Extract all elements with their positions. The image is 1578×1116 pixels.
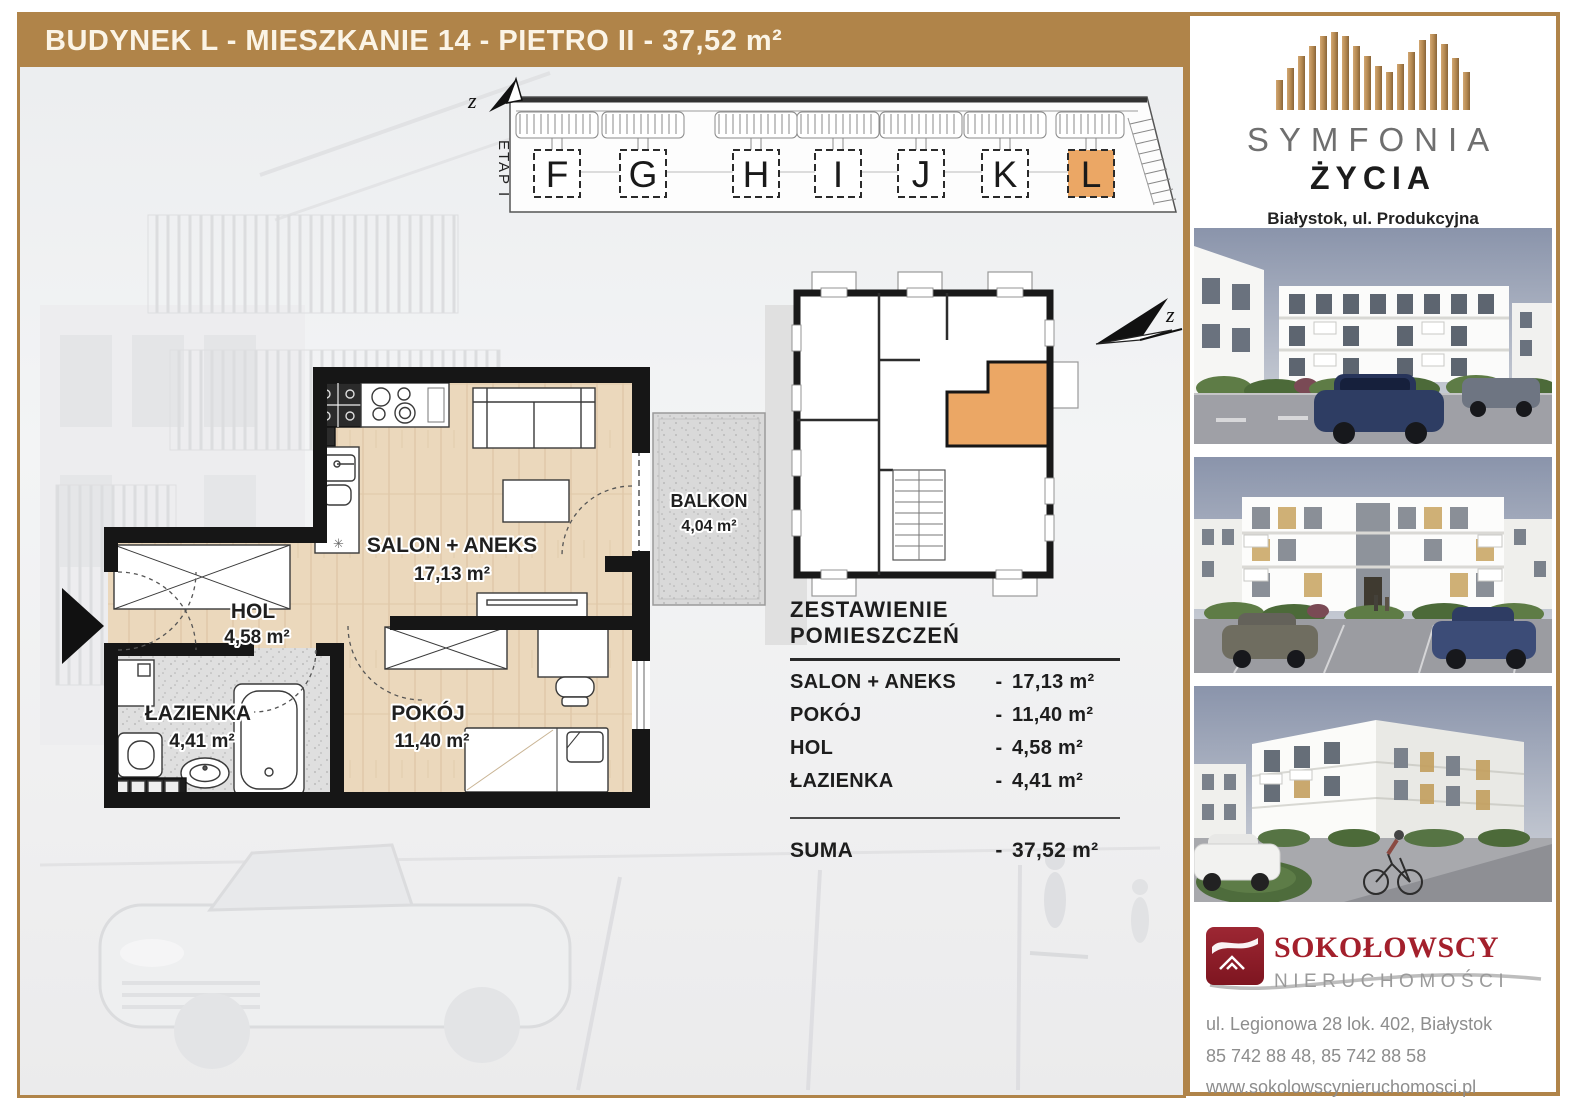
page-title: BUDYNEK L - MIESZKANIE 14 - PIETRO II - … — [45, 25, 782, 57]
washbasin-icon — [181, 758, 229, 788]
summary-row-area: 11,40 m² — [1012, 704, 1120, 727]
summary-total-area: 37,52 m² — [1012, 839, 1120, 863]
storey-overview-plan: z — [770, 262, 1190, 602]
building-label-f: F — [546, 154, 569, 195]
room-area-balkon: 4,04 m² — [681, 518, 736, 535]
floorplan-panel: BUDYNEK L - MIESZKANIE 14 - PIETRO II - … — [17, 12, 1186, 1098]
faded-car — [100, 845, 570, 1069]
summary-total-row: SUMA - 37,52 m² — [790, 839, 1120, 863]
summary-row-dash: - — [986, 770, 1012, 793]
header-bar: BUDYNEK L - MIESZKANIE 14 - PIETRO II - … — [20, 15, 1183, 67]
coffee-table-icon — [503, 480, 569, 522]
stove-icon — [361, 383, 449, 427]
room-area-hol: 4,58 m² — [224, 627, 289, 648]
agency-name: SOKOŁOWSCY — [1274, 931, 1509, 965]
agency-logo-row: SOKOŁOWSCY NIERUCHOMOŚCI — [1206, 927, 1546, 993]
summary-row-name: POKÓJ — [790, 704, 986, 727]
building-photo-1 — [1194, 228, 1552, 444]
bathroom-cabinet-icon — [114, 660, 154, 706]
room-area-salon: 17,13 m² — [414, 564, 490, 585]
drain-symbol: ✳ — [333, 536, 344, 551]
summary-row: SALON + ANEKS - 17,13 m² — [790, 671, 1120, 694]
room-label-salon: SALON + ANEKS — [367, 534, 537, 557]
building-label-i: I — [833, 154, 843, 195]
agency-subtitle: NIERUCHOMOŚCI — [1274, 971, 1509, 993]
room-label-lazienka: ŁAZIENKA — [145, 702, 251, 725]
summary-row: HOL - 4,58 m² — [790, 737, 1120, 760]
overview-north-arrow-icon: z — [1096, 298, 1182, 344]
room-summary: ZESTAWIENIE POMIESZCZEŃ SALON + ANEKS - … — [790, 597, 1120, 863]
agency-address: ul. Legionowa 28 lok. 402, Białystok — [1206, 1009, 1546, 1041]
agency-website[interactable]: www.sokolowscynieruchomosci.pl — [1206, 1072, 1546, 1104]
room-label-hol: HOL — [231, 600, 276, 623]
summary-total-label: SUMA — [790, 839, 986, 863]
summary-row-dash: - — [986, 704, 1012, 727]
building-label-h: H — [743, 154, 770, 195]
summary-row-name: HOL — [790, 737, 986, 760]
overview-north-label: z — [1165, 302, 1175, 327]
building-label-j: J — [912, 154, 931, 195]
faded-figures — [1030, 850, 1149, 957]
summary-row-dash: - — [986, 737, 1012, 760]
summary-row-area: 4,41 m² — [1012, 770, 1120, 793]
north-label: z — [467, 88, 477, 113]
room-label-pokoj: POKÓJ — [391, 701, 465, 725]
bed-icon — [465, 728, 608, 792]
flyer-page: BUDYNEK L - MIESZKANIE 14 - PIETRO II - … — [0, 0, 1578, 1116]
building-label-g: G — [629, 154, 658, 195]
summary-row-area: 17,13 m² — [1012, 671, 1120, 694]
sidebar: SYMFONIA ŻYCIA Białystok, ul. Produkcyjn… — [1186, 12, 1560, 1096]
summary-row-dash: - — [986, 671, 1012, 694]
pokoj-wardrobe-icon — [385, 627, 507, 669]
summary-row-name: ŁAZIENKA — [790, 770, 986, 793]
entrance-arrow-icon — [62, 588, 104, 664]
room-area-lazienka: 4,41 m² — [169, 731, 234, 752]
summary-total-dash: - — [986, 839, 1012, 863]
brand-block: SYMFONIA ŻYCIA Białystok, ul. Produkcyjn… — [1194, 16, 1552, 228]
summary-row: POKÓJ - 11,40 m² — [790, 704, 1120, 727]
tv-cabinet-icon — [477, 593, 587, 619]
building-label-l: L — [1081, 154, 1102, 195]
balcony-door-icon — [632, 448, 650, 556]
symfonia-logo-icon — [1268, 28, 1478, 114]
etap-label: ETAP I — [495, 140, 512, 198]
toilet-icon — [118, 733, 162, 777]
brand-name-line1: SYMFONIA — [1194, 121, 1552, 159]
summary-row: ŁAZIENKA - 4,41 m² — [790, 770, 1120, 793]
summary-row-name: SALON + ANEKS — [790, 671, 986, 694]
brand-location: Białystok, ul. Produkcyjna — [1194, 209, 1552, 229]
summary-separator — [790, 817, 1120, 819]
apartment-floor-plan: ✳ SALON + ANEKS 17,13 m² HOL 4,58 m² ŁAZ… — [50, 350, 790, 820]
agency-phones: 85 742 88 48, 85 742 88 58 — [1206, 1041, 1546, 1073]
brand-name-line2: ŻYCIA — [1194, 160, 1552, 197]
agency-block: SOKOŁOWSCY NIERUCHOMOŚCI ul. Legionowa 2… — [1194, 915, 1552, 1104]
building-photo-3 — [1194, 686, 1552, 902]
summary-row-area: 4,58 m² — [1012, 737, 1120, 760]
bathtub-icon — [234, 684, 304, 796]
room-label-balkon: BALKON — [671, 491, 748, 511]
building-label-k: K — [993, 154, 1018, 195]
site-buildings — [534, 150, 1114, 197]
room-area-pokoj: 11,40 m² — [395, 731, 470, 752]
sofa-icon — [473, 388, 595, 448]
agency-logo-icon — [1206, 927, 1264, 985]
stairs-icon — [893, 470, 945, 560]
summary-title: ZESTAWIENIE POMIESZCZEŃ — [790, 597, 1120, 661]
site-plan: F G H I J K L ETAP I z — [455, 70, 1180, 220]
pokoj-window-icon — [632, 656, 650, 734]
building-photo-2 — [1194, 457, 1552, 673]
